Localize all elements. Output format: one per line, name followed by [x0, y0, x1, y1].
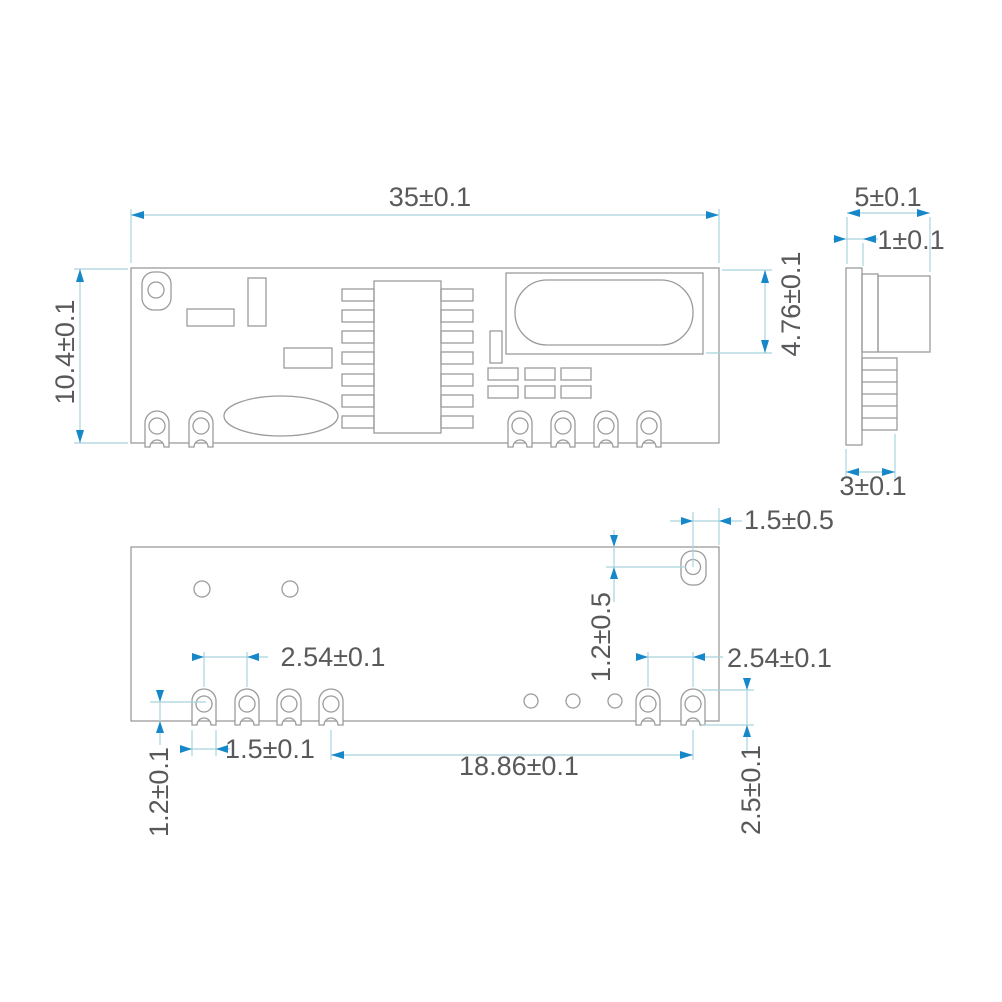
dim-label-top-width: 35±0.1 [389, 182, 471, 212]
dim-hole-to-edge: 1.5±0.5 [670, 505, 834, 567]
crystal-can-side [878, 276, 930, 352]
dim-label-pin-row-depth: 3±0.1 [839, 471, 906, 501]
side-view [846, 268, 930, 445]
dim-pin-row-depth: 3±0.1 [839, 434, 906, 501]
pcb-outline [131, 547, 719, 721]
top-view [131, 268, 719, 447]
dim-label-right-pin-pitch: 2.54±0.1 [727, 643, 832, 673]
dim-pad-width: 1.5±0.1 [180, 730, 315, 764]
pcb-edge [846, 268, 862, 445]
dim-label-pcb-thickness: 1±0.1 [877, 225, 944, 255]
component-capacitor [248, 278, 266, 326]
via-hole [566, 694, 580, 708]
dim-label-pad-width: 1.5±0.1 [225, 734, 315, 764]
dim-pin-group-span: 18.86±0.1 [331, 730, 693, 781]
dim-label-left-pin-pitch: 2.54±0.1 [281, 642, 386, 672]
dim-pcb-thickness: 1±0.1 [833, 225, 945, 266]
dim-right-pin-pitch: 2.54±0.1 [636, 643, 832, 687]
dim-top-width: 35±0.1 [131, 182, 719, 263]
component-capacitor [490, 331, 502, 363]
via-hole [194, 581, 210, 597]
dim-label-pin-group-span: 18.86±0.1 [459, 751, 579, 781]
dim-left-pin-pitch: 2.54±0.1 [192, 642, 385, 687]
dim-label-hole-to-edge: 1.5±0.5 [744, 505, 834, 535]
ic-chip [342, 281, 473, 433]
component-resistor [187, 309, 234, 326]
dim-label-hole-to-top: 1.2±0.5 [586, 592, 616, 682]
via-hole [608, 694, 622, 708]
crystal-can [506, 273, 703, 354]
crystal-base [862, 274, 878, 352]
via-hole [524, 694, 538, 708]
pin-stack [862, 358, 897, 430]
edge-pins [145, 411, 661, 447]
dim-shield-height: 4.76±0.1 [706, 252, 806, 357]
dim-label-shield-height: 4.76±0.1 [776, 252, 806, 357]
dim-pad-length: 2.5±0.1 [702, 678, 766, 835]
dimension-diagram: 35±0.1 10.4±0.1 4.76±0.1 5±0.1 1±0.1 [0, 0, 1002, 1002]
antenna-coil [224, 396, 338, 436]
mounting-hole [142, 272, 171, 310]
edge-pins [192, 689, 705, 725]
dim-label-pad-to-edge: 1.2±0.1 [144, 747, 174, 837]
dim-label-pad-length: 2.5±0.1 [736, 745, 766, 835]
dim-top-height: 10.4±0.1 [50, 269, 128, 443]
component-resistor [284, 348, 332, 368]
pad-array [488, 368, 591, 398]
dim-label-top-height: 10.4±0.1 [50, 300, 80, 405]
pcb-outline [131, 268, 719, 443]
via-hole [282, 581, 298, 597]
dim-label-side-width: 5±0.1 [854, 182, 921, 212]
technical-drawing: 35±0.1 10.4±0.1 4.76±0.1 5±0.1 1±0.1 [0, 0, 1002, 1002]
bottom-view [131, 547, 719, 725]
